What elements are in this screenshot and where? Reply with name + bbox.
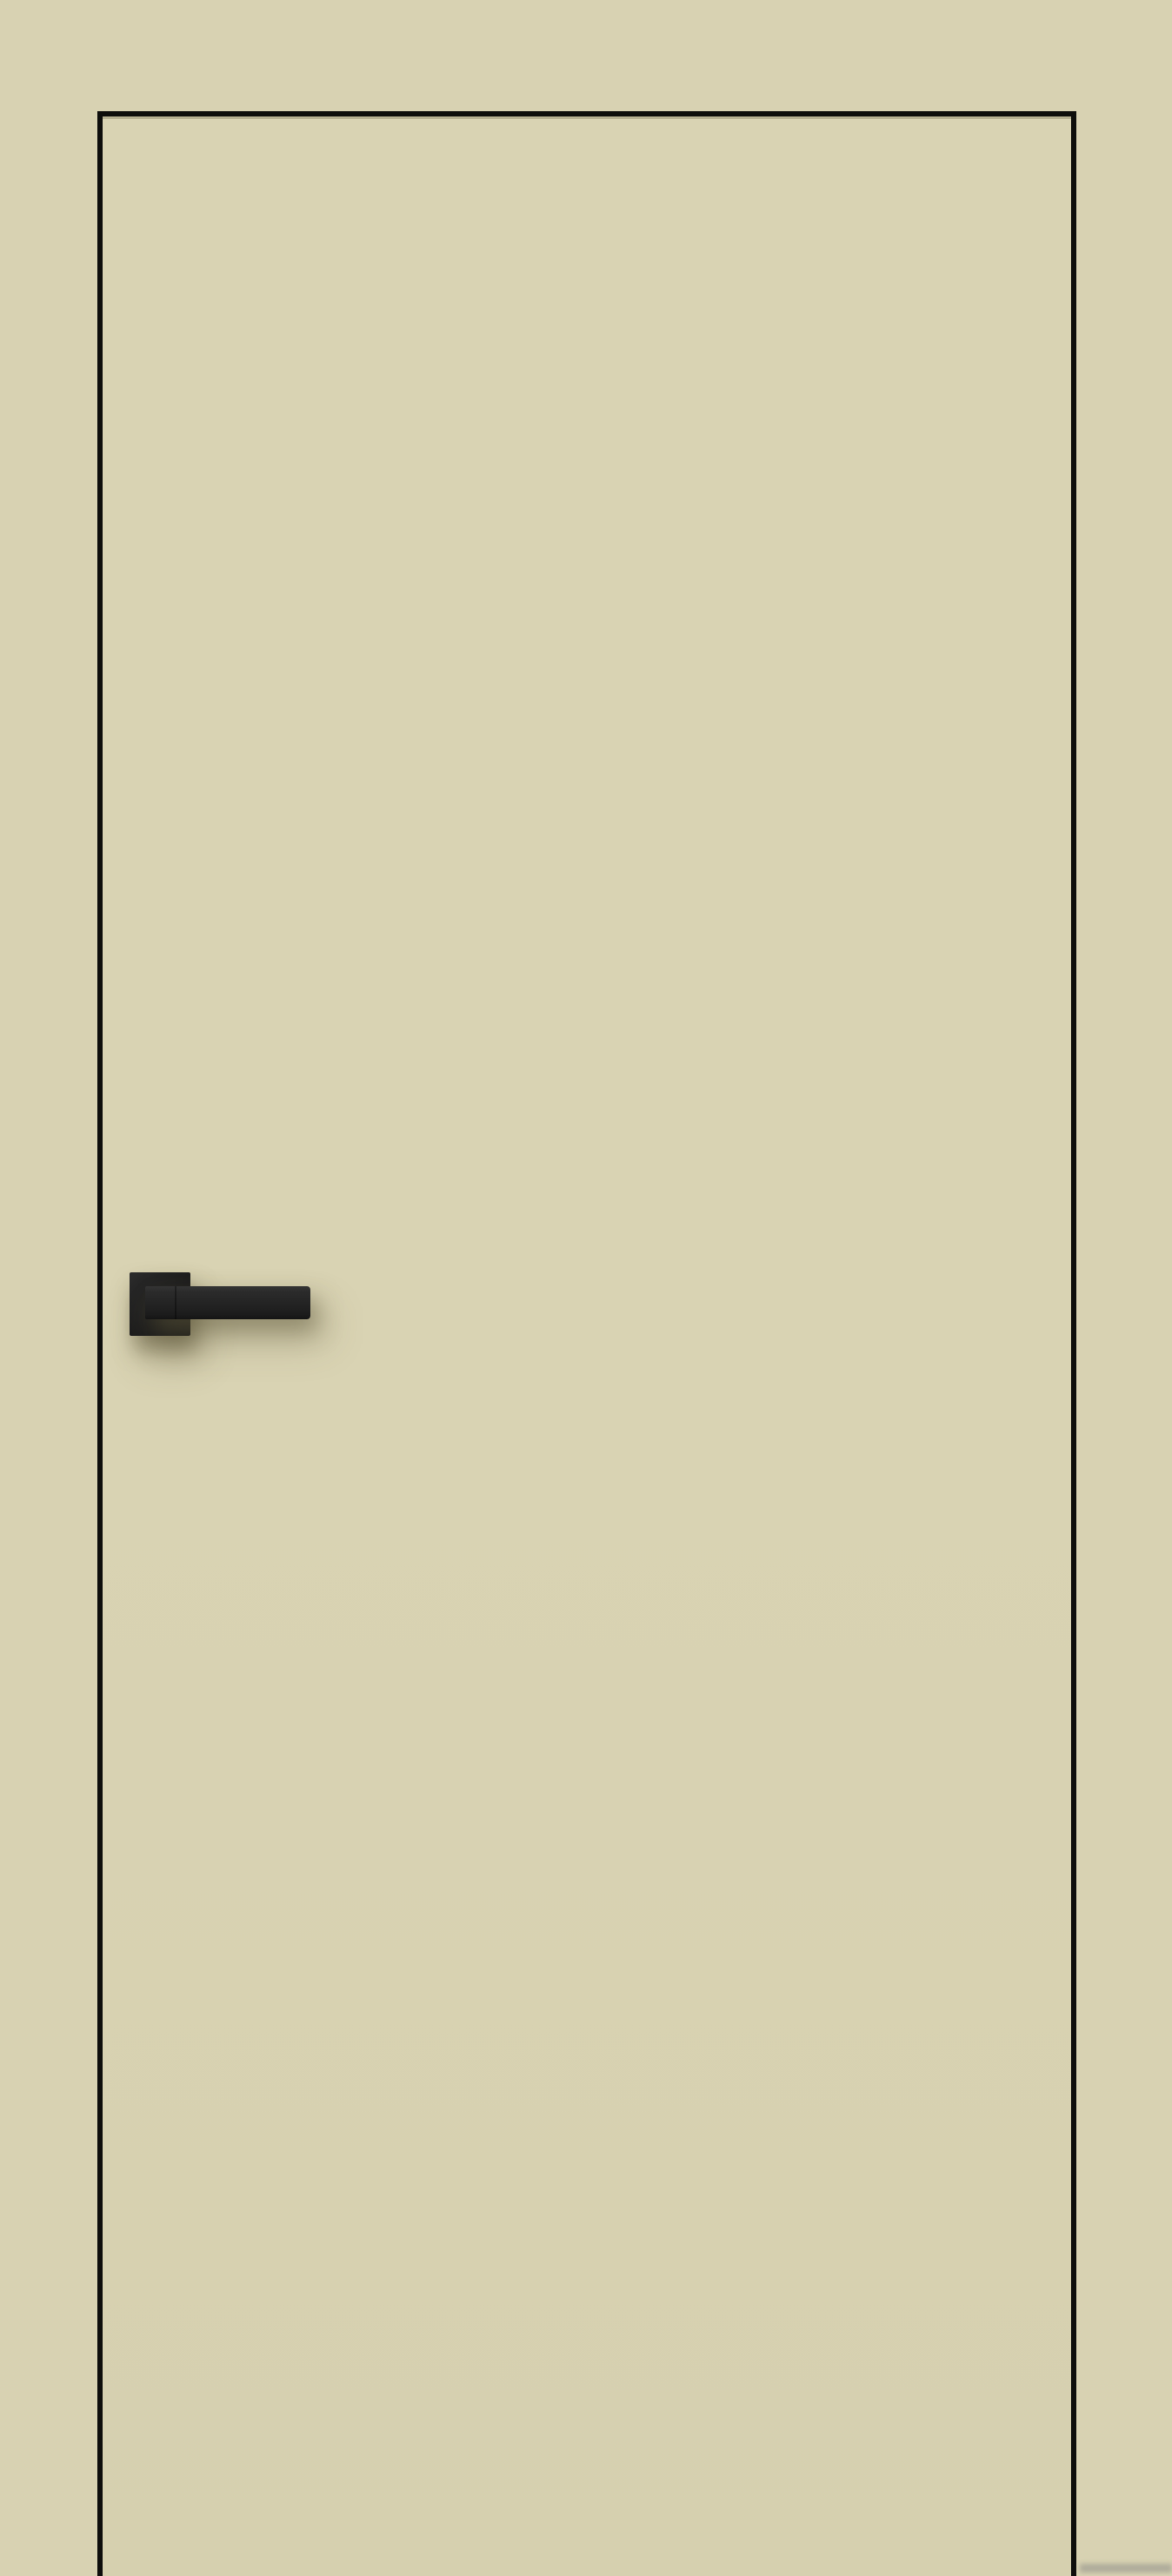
floor-shadow <box>1080 2564 1172 2573</box>
product-stage <box>0 0 1172 2576</box>
door-top-shade <box>103 116 1071 119</box>
door-panel <box>97 111 1076 2576</box>
